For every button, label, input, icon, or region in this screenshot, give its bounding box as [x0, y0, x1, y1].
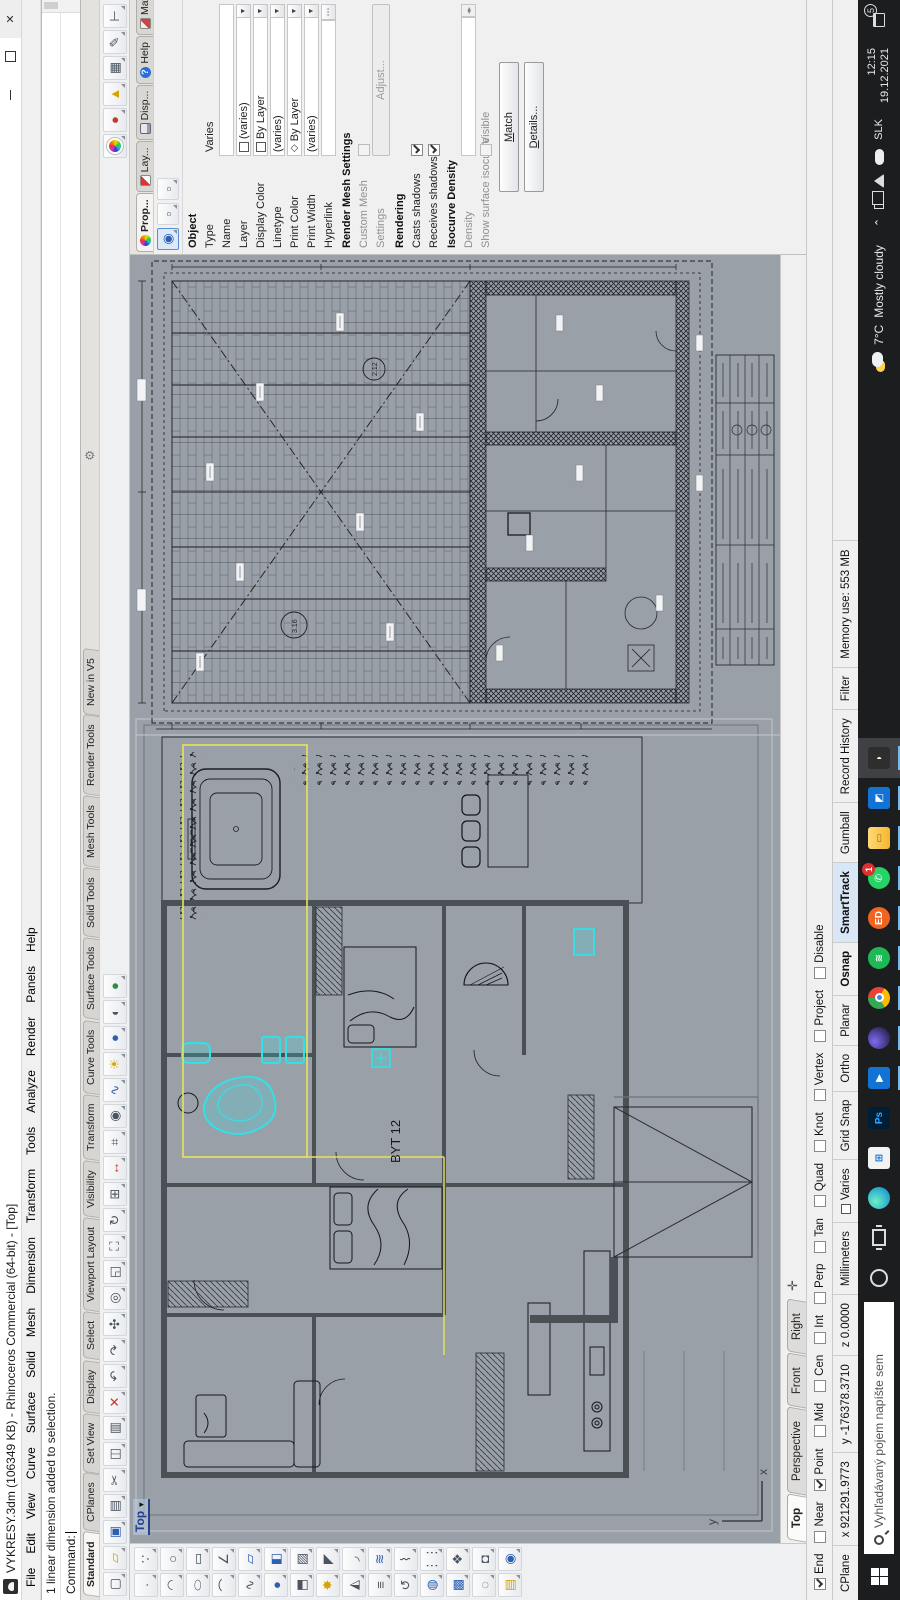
property-row-settings: SettingsAdjust... — [372, 0, 390, 254]
cortana-button[interactable] — [858, 1258, 900, 1298]
grid-annotate-icon[interactable]: ▦ — [103, 56, 127, 80]
furnished-floor-plan: BYT 12 — [136, 719, 772, 1531]
osnap-checkbox-mid[interactable] — [814, 1425, 826, 1437]
panel-tab-lay[interactable]: Lay... — [136, 141, 153, 192]
toolbar-tab-row: StandardCPlanesSet ViewDisplaySelectView… — [81, 0, 100, 1600]
toolbar-tab-viewport-layout[interactable]: Viewport Layout — [83, 1217, 99, 1312]
hide-icon[interactable]: ◌ — [472, 1573, 496, 1597]
weather-condition: Mostly cloudy — [872, 245, 886, 318]
dimension-annotate-icon[interactable]: ⊢ — [103, 4, 127, 28]
viewport-tab-label: Right — [791, 1313, 803, 1340]
menu-file[interactable]: File — [23, 1561, 39, 1594]
osnap-checkbox-vertex[interactable] — [814, 1089, 826, 1101]
panel-tab-mat[interactable]: Mat... — [136, 0, 153, 35]
button-match[interactable]: Match — [499, 62, 519, 192]
sphere-icon[interactable]: ● — [264, 1573, 288, 1597]
command-scrollbar[interactable] — [42, 0, 80, 13]
property-row-linetype: Linetype(varies)▼ — [269, 0, 286, 254]
toolbar-tab-cplanes[interactable]: CPlanes — [83, 1473, 99, 1533]
toolbar-tab-visibility[interactable]: Visibility — [83, 1160, 99, 1218]
cloud-icon[interactable] — [875, 149, 884, 165]
menu-transform[interactable]: Transform — [23, 1162, 39, 1230]
copy-icon-glyph: ◫ — [107, 1448, 123, 1460]
cut-icon[interactable]: ✂ — [103, 1468, 127, 1492]
patch-icon[interactable]: ▨ — [290, 1547, 314, 1571]
osnap-checkbox-cen[interactable] — [814, 1380, 826, 1392]
task-view-button[interactable] — [858, 1218, 900, 1258]
property-label: Type — [204, 156, 216, 248]
close-button[interactable] — [0, 0, 21, 38]
checkbox-casts-shadows[interactable] — [411, 144, 423, 156]
rotate-view-icon[interactable]: ↻ — [103, 1208, 127, 1232]
menu-curve[interactable]: Curve — [23, 1440, 39, 1486]
osnap-checkbox-quad[interactable] — [814, 1195, 826, 1207]
ghosted-view-icon[interactable]: ◐ — [103, 1000, 127, 1024]
render-sphere-icon[interactable]: ● — [103, 108, 127, 132]
cplane-icon-glyph: ⌗ — [107, 1138, 123, 1145]
arc-icon[interactable]: ⌒ — [212, 1573, 236, 1597]
color-wheel-icon[interactable] — [103, 134, 127, 158]
property-value-field[interactable]: By Layer — [253, 17, 268, 156]
basin — [178, 1093, 198, 1113]
command-prompt[interactable]: Command: — [61, 0, 80, 1600]
shaded-view-icon[interactable]: ● — [103, 1026, 127, 1050]
dropdown-arrow-icon[interactable]: ▼ — [270, 4, 285, 17]
property-value: Varies — [202, 4, 217, 156]
analyze-icon[interactable]: ∿ — [103, 1078, 127, 1102]
property-value-field[interactable] — [219, 4, 234, 156]
status-pane-label: Gumball — [840, 811, 852, 854]
property-label: Display Color — [255, 156, 267, 248]
edison-mail-icon[interactable]: ED — [858, 898, 900, 938]
control-points-icon[interactable]: ∵ — [134, 1547, 158, 1571]
osnap-checkbox-tan[interactable] — [814, 1241, 826, 1253]
status-pane-smarttrack[interactable]: SmartTrack — [833, 862, 858, 942]
roof-framing: 3.16 2.12 — [172, 281, 470, 703]
sphere-app-icon[interactable] — [858, 1018, 900, 1058]
delete-icon-glyph: ✕ — [107, 1397, 123, 1408]
osnap-tan[interactable]: Tan — [814, 1218, 826, 1253]
panel-tab-label: Mat... — [139, 0, 151, 15]
menu-panels[interactable]: Panels — [23, 959, 39, 1010]
toolbar-tab-curve-tools[interactable]: Curve Tools — [83, 1019, 99, 1094]
zoom-window-icon[interactable]: ◱ — [103, 1260, 127, 1284]
trim-icon[interactable]: ◤ — [316, 1547, 340, 1571]
room-label: 2.12 — [372, 362, 379, 376]
group-header: Object — [183, 0, 201, 254]
carport — [530, 1097, 758, 1319]
toolbar-tab-mesh-tools[interactable]: Mesh Tools — [83, 795, 99, 868]
osnap-mid[interactable]: Mid — [814, 1403, 826, 1438]
zoom-extents-icon[interactable]: ⛶ — [103, 1234, 127, 1258]
menu-analyze[interactable]: Analyze — [23, 1063, 39, 1120]
viewport-title-menu[interactable]: Top — [133, 1499, 150, 1535]
dropdown-arrow-icon[interactable]: ▼ — [304, 4, 319, 17]
toolbar-tab-transform[interactable]: Transform — [83, 1093, 99, 1161]
property-label: Linetype — [272, 156, 284, 248]
circle-icon-glyph: ○ — [165, 1555, 180, 1563]
toolbar-tab-display[interactable]: Display — [83, 1359, 99, 1414]
menu-view[interactable]: View — [23, 1486, 39, 1526]
toolbar-tab-label: Transform — [85, 1104, 97, 1151]
button-details[interactable]: Details... — [524, 62, 544, 192]
sofa — [184, 1381, 320, 1467]
osnap-icon[interactable]: ◉ — [103, 1104, 127, 1128]
extrude-icon-glyph: ⬒ — [294, 1579, 310, 1591]
osnap-point[interactable]: Point — [814, 1448, 826, 1490]
status-pane-record[interactable]: Record History — [833, 709, 858, 802]
property-row-print-color: Print Color◇By Layer▼ — [286, 0, 303, 254]
osnap-label: Mid — [814, 1403, 826, 1422]
osnap-checkbox-near[interactable] — [814, 1531, 826, 1543]
maximize-button[interactable] — [0, 38, 21, 76]
toolbar-tab-set-view[interactable]: Set View — [83, 1412, 99, 1473]
photoshop-icon-glyph: Ps — [868, 1107, 890, 1129]
new-viewport-tab-icon[interactable]: ✛ — [786, 1278, 801, 1293]
osnap-knot[interactable]: Knot — [814, 1112, 826, 1152]
toolbar-tab-select[interactable]: Select — [83, 1311, 99, 1360]
object-properties-icon-glyph: ◉ — [160, 233, 176, 244]
status-pane-millimeters[interactable]: Millimeters — [833, 1222, 858, 1294]
toolbar-tab-label: Surface Tools — [85, 947, 97, 1010]
boolean-icon-glyph: ◍ — [424, 1579, 440, 1590]
status-pane-ortho[interactable]: Ortho — [833, 1045, 858, 1091]
rotate-view-icon-glyph: ↻ — [107, 1215, 123, 1226]
group-icon[interactable]: ❖ — [446, 1547, 470, 1571]
menu-dimension[interactable]: Dimension — [23, 1230, 39, 1301]
split-icon[interactable]: ◭ — [342, 1573, 366, 1597]
whatsapp-icon[interactable]: ✆1 — [858, 858, 900, 898]
toolbar-tab-label: Curve Tools — [85, 1029, 97, 1084]
status-bar: CPlanex 921291.9773y -176378.3710z 0.000… — [832, 0, 858, 1600]
new-file-icon[interactable]: ▢ — [103, 1572, 127, 1596]
property-value-field[interactable]: ◇By Layer — [287, 17, 302, 156]
status-pane-filter[interactable]: Filter — [833, 667, 858, 710]
cplane-icon[interactable]: ⌗ — [103, 1130, 127, 1154]
toolbar-tab-label: Mesh Tools — [85, 805, 97, 858]
material-icon — [140, 18, 151, 29]
status-pane-planar[interactable]: Planar — [833, 995, 858, 1045]
curve-icon[interactable]: ◠ — [160, 1573, 184, 1597]
osnap-checkbox-project[interactable] — [814, 1030, 826, 1042]
menu-help[interactable]: Help — [23, 920, 39, 959]
viewport-tab-front[interactable]: Front — [787, 1352, 806, 1408]
move-icon[interactable]: ↔ — [103, 1156, 127, 1180]
spotlight-icon[interactable]: ▲ — [103, 82, 127, 106]
dimension-style-icon[interactable]: ▫ — [157, 178, 179, 200]
menu-render[interactable]: Render — [23, 1010, 39, 1063]
pan-icon[interactable]: ✣ — [103, 1312, 127, 1336]
side-toolbar: ·∵◠○⬭▭⌒∠∿▱●◧⬒▨✸◤◭◞≡≋↺⌇◍⋮⋮▩❖◌◘▤◉ — [130, 1543, 806, 1600]
planter-half-round — [464, 963, 508, 985]
material-icon-glyph: ▫ — [161, 212, 176, 217]
revolve-icon-glyph: ↺ — [398, 1580, 414, 1591]
rectangle-icon[interactable]: ▭ — [186, 1547, 210, 1571]
group-header: Rendering — [390, 0, 408, 254]
property-label: Density — [463, 156, 475, 248]
material-icon[interactable]: ▫ — [157, 203, 179, 225]
store-icon[interactable]: ⊞ — [858, 1138, 900, 1178]
undo-icon[interactable]: ↶ — [103, 1364, 127, 1388]
property-label: Layer — [238, 156, 250, 248]
freeform-curve-icon[interactable]: ∿ — [238, 1573, 262, 1597]
property-value-field[interactable] — [321, 20, 336, 156]
property-value-field[interactable]: (varies) — [236, 17, 251, 156]
explode-icon[interactable]: ✸ — [316, 1573, 340, 1597]
redo-icon[interactable]: ↷ — [103, 1338, 127, 1362]
color-swatch — [256, 142, 266, 152]
viewport-tab-perspective[interactable]: Perspective — [787, 1406, 806, 1495]
chevron-up-icon[interactable]: ⌃ — [873, 218, 886, 227]
photoshop-icon[interactable]: Ps — [858, 1098, 900, 1138]
toolbar-tab-render-tools[interactable]: Render Tools — [83, 715, 99, 797]
osnap-end[interactable]: End — [814, 1554, 826, 1590]
property-value-field[interactable]: (varies) — [270, 17, 285, 156]
panel-tab-label: Lay... — [139, 147, 151, 172]
color-swatch — [239, 142, 249, 152]
undo-icon-glyph: ↶ — [107, 1371, 123, 1382]
polyline-icon[interactable]: ∠ — [212, 1547, 236, 1571]
osnap-checkbox-point[interactable] — [814, 1479, 826, 1491]
status-pane-label: Grid Snap — [840, 1100, 852, 1152]
osnap-label: Point — [814, 1448, 826, 1474]
extrude-icon[interactable]: ⬒ — [290, 1573, 314, 1597]
dual-display-icon[interactable] — [874, 197, 884, 209]
viewport-tab-right[interactable]: Right — [787, 1298, 806, 1354]
osnap-checkbox-disable[interactable] — [814, 967, 826, 979]
play-app-icon[interactable]: ▶ — [858, 1058, 900, 1098]
rhino-icon[interactable]: ◗ — [858, 738, 900, 778]
osnap-checkbox-int[interactable] — [814, 1332, 826, 1344]
signal-icon[interactable] — [874, 174, 884, 188]
hatched-walls — [470, 281, 689, 703]
toolbar-tab-solid-tools[interactable]: Solid Tools — [83, 867, 99, 938]
room-label: 3.16 — [292, 619, 299, 633]
toolbar-tab-label: CPlanes — [85, 1483, 97, 1523]
block-icon-glyph: ▩ — [450, 1579, 466, 1591]
offset-icon[interactable]: ≡ — [368, 1573, 392, 1597]
toolbar-tab-surface-tools[interactable]: Surface Tools — [83, 937, 99, 1021]
status-pane-label: Osnap — [840, 951, 852, 987]
search-placeholder: Vyhľadávaný pojem napíšte sem — [872, 1354, 886, 1528]
property-row-custom-mesh: Custom Mesh — [355, 0, 372, 254]
rhino-window: VYKRESY.3dm (106349 KB) - Rhinoceros Com… — [0, 0, 900, 1600]
status-pane-cplane[interactable]: CPlane — [833, 1545, 858, 1600]
property-row-receives-shadows: Receives shadows — [425, 0, 442, 254]
menu-surface[interactable]: Surface — [23, 1385, 39, 1440]
command-history-line: 1 linear dimension added to selection. — [42, 0, 61, 1600]
control-points-icon-glyph: ∵ — [138, 1555, 154, 1563]
lock-icon[interactable]: ◘ — [472, 1547, 496, 1571]
dropdown-arrow-icon[interactable]: ▼ — [253, 4, 268, 17]
browse-button[interactable]: ⋯ — [321, 4, 336, 20]
print-icon[interactable]: ▤ — [103, 1494, 127, 1518]
object-properties-icon[interactable]: ◉ — [157, 228, 179, 250]
spotify-icon-glyph: ≋ — [868, 947, 890, 969]
spotify-icon[interactable]: ≋ — [858, 938, 900, 978]
osnap-checkbox-perp[interactable] — [814, 1292, 826, 1304]
status-pane-z[interactable]: z 0.0000 — [833, 1294, 858, 1355]
edge-icon[interactable] — [858, 1178, 900, 1218]
light-icon[interactable]: ☀ — [103, 1052, 127, 1076]
file-explorer-icon[interactable]: ▭ — [858, 818, 900, 858]
osnap-near[interactable]: Near — [814, 1502, 826, 1543]
page-annotate-icon-glyph: ✎ — [107, 37, 123, 48]
revolve-icon[interactable]: ↺ — [394, 1573, 418, 1597]
room-partitions — [486, 295, 676, 689]
toolbar-tab-label: New in V5 — [85, 658, 97, 706]
status-pane-varies[interactable]: Varies — [833, 1159, 858, 1222]
status-pane-label: Filter — [840, 676, 852, 702]
array-icon[interactable]: ⋮⋮ — [420, 1547, 444, 1571]
surface-icon[interactable]: ▱ — [238, 1547, 262, 1571]
wardrobes — [168, 907, 594, 1471]
osnap-cen[interactable]: Cen — [814, 1355, 826, 1392]
edison-mail-icon-glyph: ED — [868, 907, 890, 929]
paste-icon[interactable]: ▥ — [103, 1416, 127, 1440]
photos-icon[interactable]: ◩ — [858, 778, 900, 818]
rendered-view-icon[interactable]: ● — [103, 974, 127, 998]
circle-icon[interactable]: ○ — [160, 1547, 184, 1571]
status-pane-osnap[interactable]: Osnap — [833, 942, 858, 995]
osnap-disable[interactable]: Disable — [814, 925, 826, 979]
osnap-perp[interactable]: Perp — [814, 1264, 826, 1304]
panel-tab-label: Help — [139, 42, 151, 64]
osnap-quad[interactable]: Quad — [814, 1163, 826, 1207]
zoom-dynamic-icon[interactable]: ◎ — [103, 1286, 127, 1310]
property-value-field[interactable] — [461, 17, 476, 156]
delete-icon[interactable]: ✕ — [103, 1390, 127, 1414]
box-icon[interactable]: ◧ — [264, 1547, 288, 1571]
status-pane-label: Record History — [840, 718, 852, 794]
layer-color-swatch — [841, 1204, 851, 1214]
edge-icon-glyph — [868, 1187, 890, 1209]
taskbar-clock[interactable]: 12:15 19.12.2021 — [866, 40, 892, 111]
status-pane-grid[interactable]: Grid Snap — [833, 1091, 858, 1160]
language-indicator[interactable]: SLK — [873, 119, 885, 140]
spinner-arrows-icon[interactable]: ◂▸ — [461, 4, 476, 17]
color-wheel-glyph — [107, 138, 123, 154]
property-row-density: Density◂▸ — [460, 0, 477, 254]
status-pane-memory[interactable]: Memory use: 553 MB — [833, 540, 858, 666]
object-properties-icon[interactable]: ◉ — [498, 1547, 522, 1571]
loft-icon-glyph: ≋ — [372, 1554, 388, 1565]
top-viewport[interactable]: Top — [130, 255, 780, 1543]
menu-tools[interactable]: Tools — [23, 1120, 39, 1162]
dropdown-arrow-icon[interactable]: ▼ — [236, 4, 251, 17]
layer-state-icon[interactable]: ▤ — [498, 1573, 522, 1597]
toolbar-tab-standard[interactable]: Standard — [83, 1531, 99, 1597]
checkbox-custom-mesh[interactable] — [358, 144, 370, 156]
ellipse-icon[interactable]: ⬭ — [186, 1573, 210, 1597]
status-pane-x[interactable]: x 921291.9773 — [833, 1452, 858, 1545]
arc-icon-glyph: ⌒ — [215, 1579, 234, 1592]
osnap-toolbar: EndNearPointMidCenIntPerpTanQuadKnotVert… — [806, 0, 832, 1600]
weather-widget[interactable]: 7°C Mostly cloudy — [872, 235, 886, 382]
menu-bar: FileEditViewCurveSurfaceSolidMeshDimensi… — [22, 0, 41, 1600]
loft-icon[interactable]: ≋ — [368, 1547, 392, 1571]
cut-icon-glyph: ✂ — [107, 1475, 123, 1486]
osnap-project[interactable]: Project — [814, 990, 826, 1042]
save-icon-glyph: ▣ — [107, 1526, 123, 1538]
toolbar-tab-label: Set View — [85, 1423, 97, 1464]
point-icon-glyph: · — [139, 1583, 154, 1587]
rendered-view-icon-glyph: ● — [107, 982, 122, 990]
start-button[interactable] — [858, 1554, 900, 1600]
action-center-button[interactable]: 5 — [858, 0, 900, 40]
osnap-checkbox-end[interactable] — [814, 1578, 826, 1590]
block-icon[interactable]: ▩ — [446, 1573, 470, 1597]
page-annotate-icon[interactable]: ✎ — [103, 30, 127, 54]
panel-tab-disp[interactable]: Disp... — [136, 85, 153, 141]
property-value-field[interactable]: (varies) — [304, 17, 319, 156]
status-pane-label: CPlane — [840, 1554, 852, 1592]
toolbar-tab-label: Solid Tools — [85, 877, 97, 928]
axis-x-label: x — [756, 1469, 770, 1475]
viewport-tab-top[interactable]: Top — [787, 1493, 806, 1543]
osnap-checkbox-knot[interactable] — [814, 1140, 826, 1152]
polyline-icon-glyph: ∠ — [216, 1553, 232, 1565]
minimize-button[interactable] — [0, 76, 21, 114]
sweep-icon[interactable]: ⌇ — [394, 1547, 418, 1571]
taskbar-search-input[interactable]: Vyhľadávaný pojem napíšte sem — [864, 1302, 894, 1554]
osnap-label: Vertex — [814, 1053, 826, 1086]
zoom-window-icon-glyph: ◱ — [107, 1266, 123, 1278]
menu-edit[interactable]: Edit — [23, 1526, 39, 1561]
dimension-annotate-icon-glyph: ⊢ — [107, 10, 123, 21]
open-file-icon[interactable]: ▱ — [103, 1546, 127, 1570]
command-prompt-label: Command: — [64, 1535, 78, 1594]
toolbar-tab-label: Select — [85, 1321, 97, 1350]
boolean-icon[interactable]: ◍ — [420, 1573, 444, 1597]
checkbox-show-surface-isocurve[interactable] — [480, 144, 492, 156]
viewport-layout-icon[interactable]: ⊞ — [103, 1182, 127, 1206]
freeform-curve-icon-glyph: ∿ — [242, 1580, 258, 1591]
status-pane-gumball[interactable]: Gumball — [833, 802, 858, 862]
sweep-icon-glyph: ⌇ — [398, 1556, 414, 1562]
copy-icon[interactable]: ◫ — [103, 1442, 127, 1466]
panel-tab-help[interactable]: ?Help — [136, 36, 153, 84]
osnap-label: Disable — [814, 925, 826, 963]
property-row-print-width: Print Width(varies)▼ — [303, 0, 320, 254]
button-adjust[interactable]: Adjust... — [372, 4, 390, 156]
chrome-icon[interactable] — [858, 978, 900, 1018]
property-label: Casts shadows — [411, 156, 423, 248]
property-label: Custom Mesh — [358, 156, 370, 248]
dropdown-arrow-icon[interactable]: ▼ — [287, 4, 302, 17]
status-pane-label: z 0.0000 — [840, 1303, 852, 1347]
status-pane-y[interactable]: y -176378.3710 — [833, 1355, 858, 1452]
toolbar-tab-new-in-v5[interactable]: New in V5 — [83, 648, 99, 716]
hide-icon-glyph: ◌ — [477, 1581, 492, 1589]
fillet-icon-glyph: ◞ — [346, 1556, 362, 1561]
panel-tab-label: Prop... — [139, 199, 151, 232]
osnap-int[interactable]: Int — [814, 1315, 826, 1344]
point-icon[interactable]: · — [134, 1573, 158, 1597]
menu-mesh[interactable]: Mesh — [23, 1301, 39, 1344]
menu-solid[interactable]: Solid — [23, 1344, 39, 1385]
display-icon — [140, 123, 151, 134]
fillet-icon[interactable]: ◞ — [342, 1547, 366, 1571]
osnap-vertex[interactable]: Vertex — [814, 1053, 826, 1102]
checkbox-receives-shadows[interactable] — [428, 144, 440, 156]
toolbar-options-gear-icon[interactable]: ⚙ — [83, 450, 97, 461]
save-icon[interactable]: ▣ — [103, 1520, 127, 1544]
status-pane-label: y -176378.3710 — [840, 1364, 852, 1444]
osnap-label: Cen — [814, 1355, 826, 1376]
status-pane-label: Millimeters — [840, 1231, 852, 1286]
panel-tab-prop[interactable]: Prop... — [136, 193, 153, 252]
